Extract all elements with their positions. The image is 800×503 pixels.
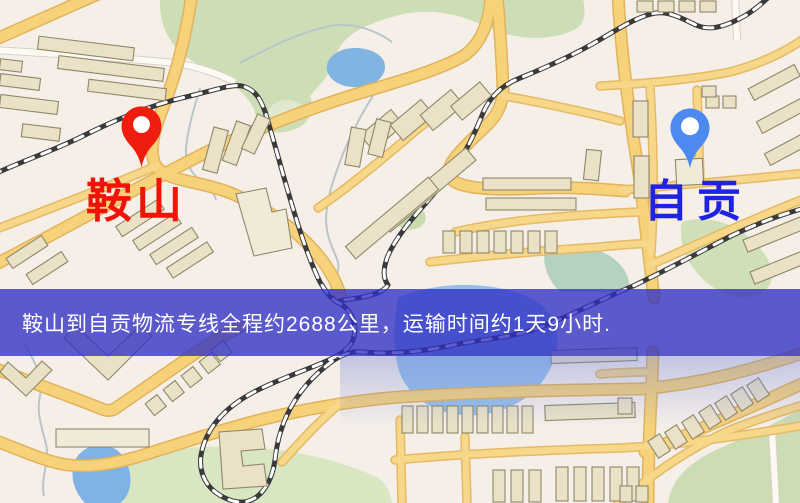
anshan-marker[interactable] (118, 104, 165, 177)
logistics-route-map: 鞍山 自贡 鞍山到自贡物流专线全程约2688公里，运输时间约1天9小时. (0, 0, 800, 503)
zigong-label: 自贡 (644, 180, 750, 224)
zigong-marker[interactable] (667, 106, 713, 178)
route-info-banner: 鞍山到自贡物流专线全程约2688公里，运输时间约1天9小时. (0, 289, 800, 356)
map-pin-icon (118, 104, 165, 172)
anshan-label: 鞍山 (86, 179, 186, 225)
map-canvas (0, 0, 800, 503)
map-pin-icon (667, 106, 713, 173)
water-wash-overlay (340, 356, 800, 428)
route-info-text: 鞍山到自贡物流专线全程约2688公里，运输时间约1天9小时. (22, 308, 611, 338)
